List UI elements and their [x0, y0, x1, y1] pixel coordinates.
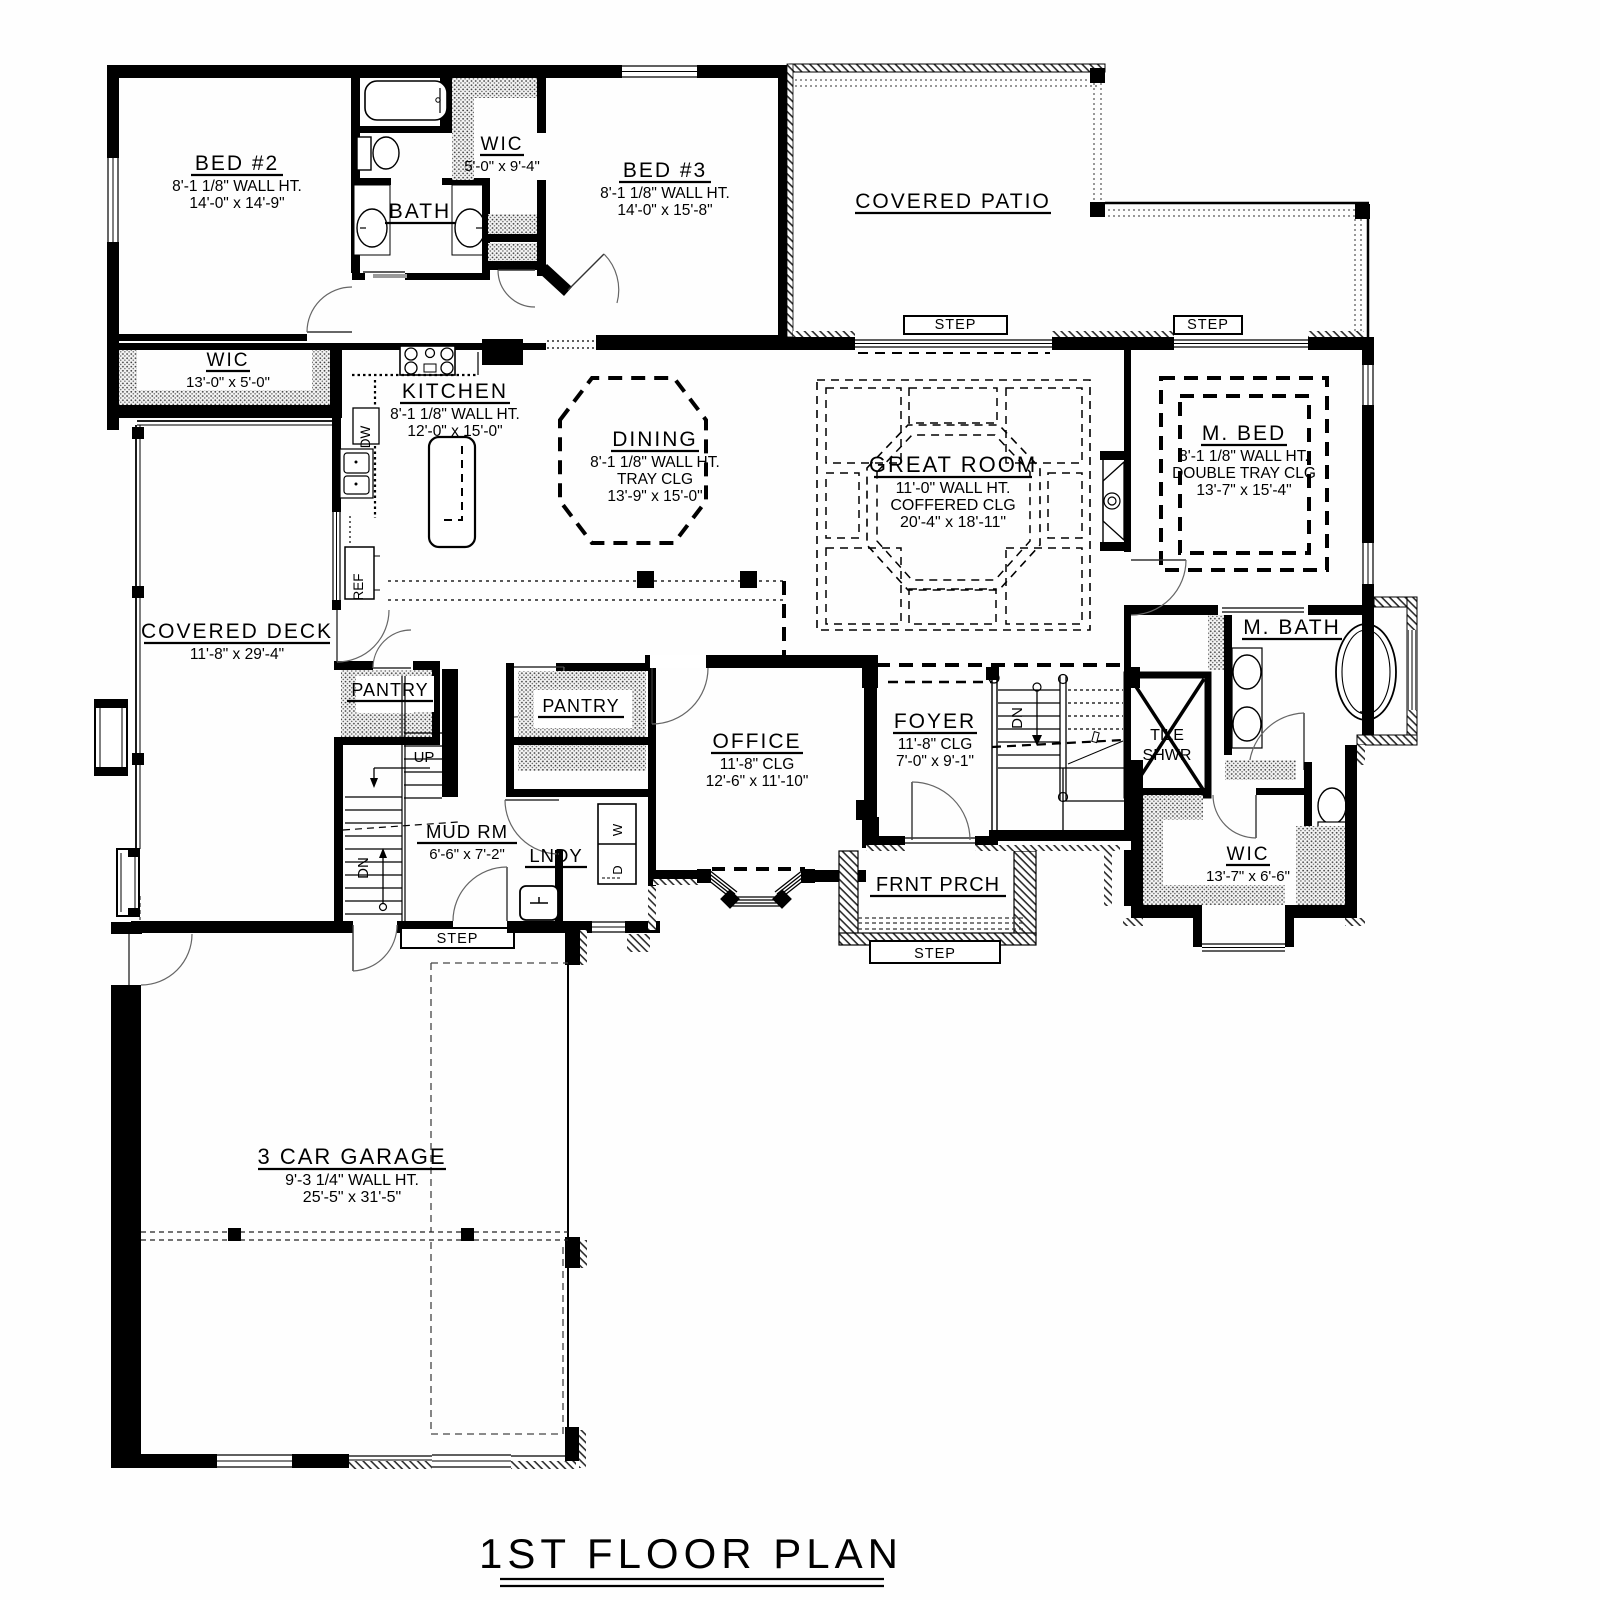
svg-text:DW: DW — [358, 426, 373, 449]
svg-text:13'-0" x 5'-0": 13'-0" x 5'-0" — [186, 374, 270, 391]
svg-text:7'-0" x 9'-1": 7'-0" x 9'-1" — [896, 753, 974, 770]
svg-text:M. BATH: M. BATH — [1243, 616, 1341, 639]
svg-text:12'-0" x 15'-0": 12'-0" x 15'-0" — [407, 423, 502, 440]
svg-text:13'-7" x 6'-6": 13'-7" x 6'-6" — [1206, 868, 1290, 885]
svg-text:PANTRY: PANTRY — [351, 680, 428, 700]
svg-text:DN: DN — [1009, 707, 1026, 729]
svg-text:MUD RM: MUD RM — [426, 821, 508, 842]
svg-text:STEP: STEP — [1187, 317, 1229, 333]
svg-text:25'-5" x 31'-5": 25'-5" x 31'-5" — [303, 1189, 401, 1206]
svg-text:PANTRY: PANTRY — [542, 696, 619, 716]
svg-text:8'-1 1/8" WALL HT.: 8'-1 1/8" WALL HT. — [590, 454, 720, 471]
svg-text:OFFICE: OFFICE — [713, 730, 802, 753]
svg-text:M. BED: M. BED — [1202, 422, 1286, 445]
svg-text:DINING: DINING — [612, 428, 698, 451]
svg-text:DN: DN — [355, 857, 372, 879]
svg-text:REF: REF — [351, 574, 366, 601]
svg-text:8'-1 1/8" WALL HT.: 8'-1 1/8" WALL HT. — [1179, 448, 1309, 465]
svg-text:1ST FLOOR PLAN: 1ST FLOOR PLAN — [479, 1530, 903, 1577]
svg-text:13'-9" x 15'-0": 13'-9" x 15'-0" — [607, 488, 702, 505]
svg-text:BATH: BATH — [389, 200, 451, 223]
svg-text:BED #2: BED #2 — [195, 152, 279, 175]
svg-text:13'-7" x 15'-4": 13'-7" x 15'-4" — [1196, 482, 1291, 499]
svg-text:FRNT PRCH: FRNT PRCH — [876, 874, 1000, 896]
svg-text:WIC: WIC — [1227, 844, 1270, 865]
svg-text:WIC: WIC — [207, 350, 250, 371]
svg-text:GREAT ROOM: GREAT ROOM — [869, 452, 1037, 477]
svg-text:STEP: STEP — [437, 931, 479, 947]
svg-text:5'-0" x 9'-4": 5'-0" x 9'-4" — [464, 158, 540, 175]
svg-text:STEP: STEP — [935, 317, 977, 333]
svg-text:KITCHEN: KITCHEN — [402, 380, 508, 403]
svg-text:11'-8" x 29'-4": 11'-8" x 29'-4" — [190, 646, 284, 663]
svg-text:3 CAR GARAGE: 3 CAR GARAGE — [257, 1144, 446, 1169]
svg-text:COVERED PATIO: COVERED PATIO — [855, 190, 1051, 213]
svg-text:LNDY: LNDY — [529, 845, 582, 866]
svg-text:STEP: STEP — [914, 946, 956, 962]
svg-text:14'-0" x 15'-8": 14'-0" x 15'-8" — [617, 202, 712, 219]
svg-text:11'-8" CLG: 11'-8" CLG — [898, 736, 973, 753]
svg-text:COFFERED CLG: COFFERED CLG — [890, 497, 1015, 514]
svg-text:11'-8" CLG: 11'-8" CLG — [720, 756, 795, 773]
svg-text:12'-6" x 11'-10": 12'-6" x 11'-10" — [706, 773, 809, 790]
svg-text:9'-3 1/4" WALL HT.: 9'-3 1/4" WALL HT. — [285, 1172, 419, 1189]
svg-text:WIC: WIC — [481, 134, 524, 155]
svg-text:20'-4" x 18'-11": 20'-4" x 18'-11" — [900, 514, 1006, 531]
svg-text:D: D — [610, 865, 625, 874]
svg-text:8'-1 1/8" WALL HT.: 8'-1 1/8" WALL HT. — [172, 178, 302, 195]
svg-text:W: W — [610, 823, 625, 836]
svg-text:11'-0" WALL HT.: 11'-0" WALL HT. — [896, 480, 1011, 497]
svg-text:DOUBLE TRAY CLG: DOUBLE TRAY CLG — [1172, 465, 1316, 482]
svg-text:8'-1 1/8" WALL HT.: 8'-1 1/8" WALL HT. — [390, 406, 520, 423]
svg-text:UP: UP — [414, 749, 435, 766]
svg-text:TRAY CLG: TRAY CLG — [617, 471, 693, 488]
svg-text:8'-1 1/8" WALL HT.: 8'-1 1/8" WALL HT. — [600, 185, 730, 202]
svg-text:TILE: TILE — [1150, 727, 1184, 744]
svg-text:SHWR: SHWR — [1143, 747, 1192, 764]
svg-text:14'-0" x 14'-9": 14'-0" x 14'-9" — [189, 195, 284, 212]
svg-text:FOYER: FOYER — [894, 710, 976, 733]
svg-text:BED #3: BED #3 — [623, 159, 707, 182]
svg-text:6'-6" x 7'-2": 6'-6" x 7'-2" — [429, 846, 505, 863]
svg-text:COVERED DECK: COVERED DECK — [141, 620, 333, 643]
